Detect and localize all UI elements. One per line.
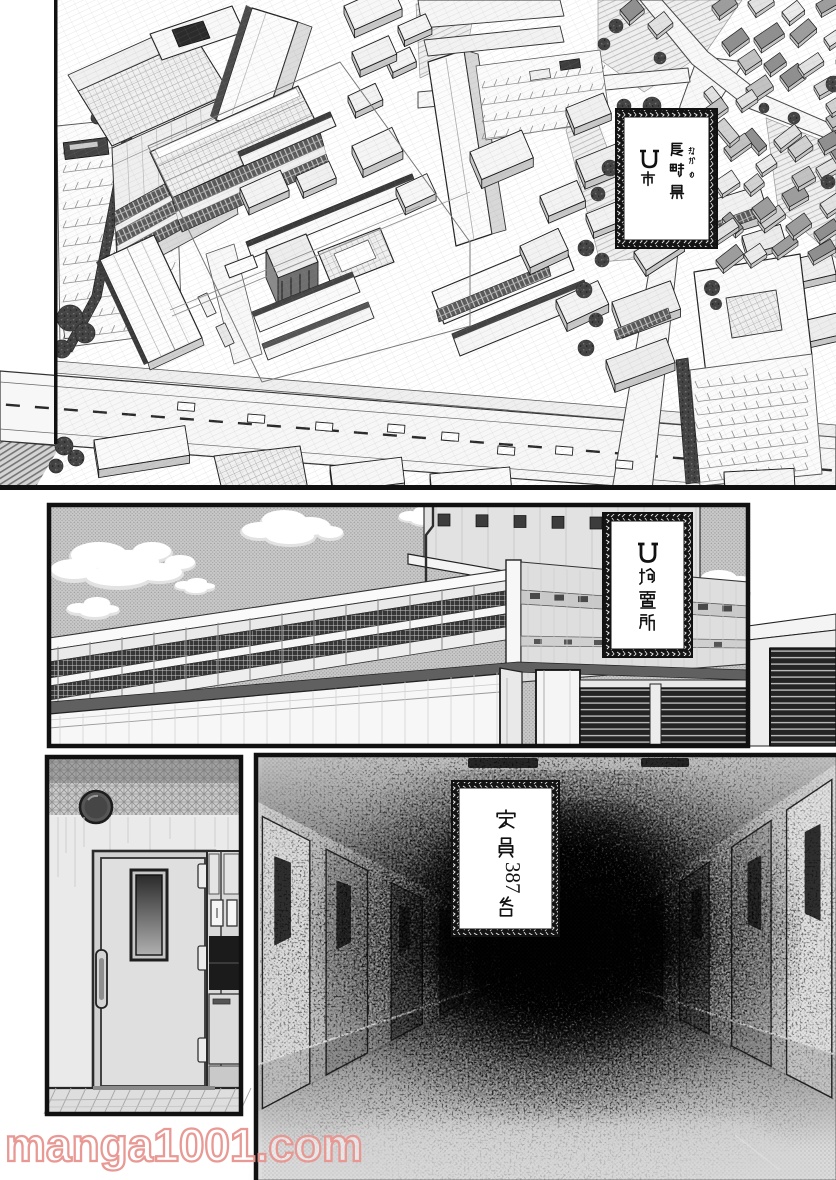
svg-text:387: 387 [501,862,525,894]
